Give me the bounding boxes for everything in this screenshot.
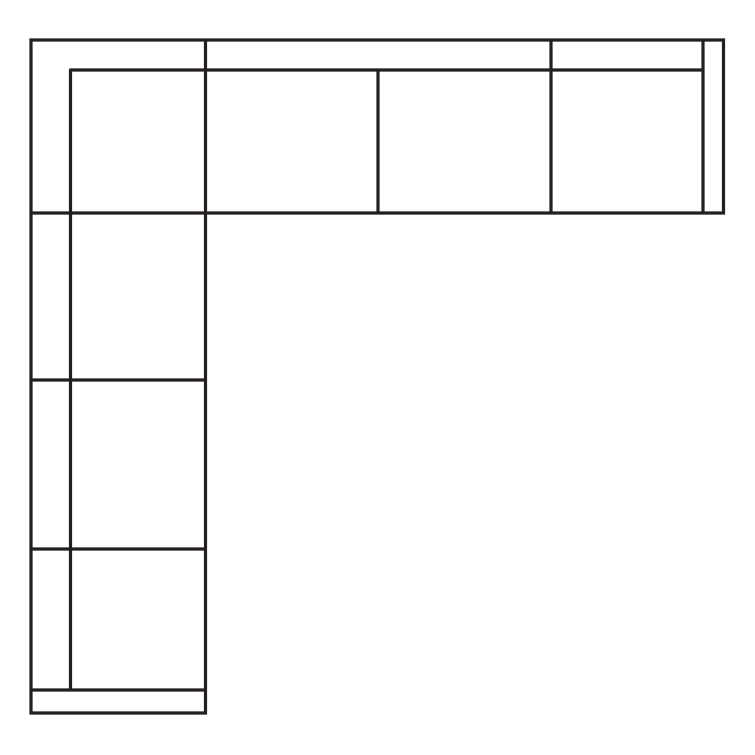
- sectional-sofa-plan-canvas: [0, 0, 755, 755]
- sectional-sofa-diagram: [0, 0, 755, 755]
